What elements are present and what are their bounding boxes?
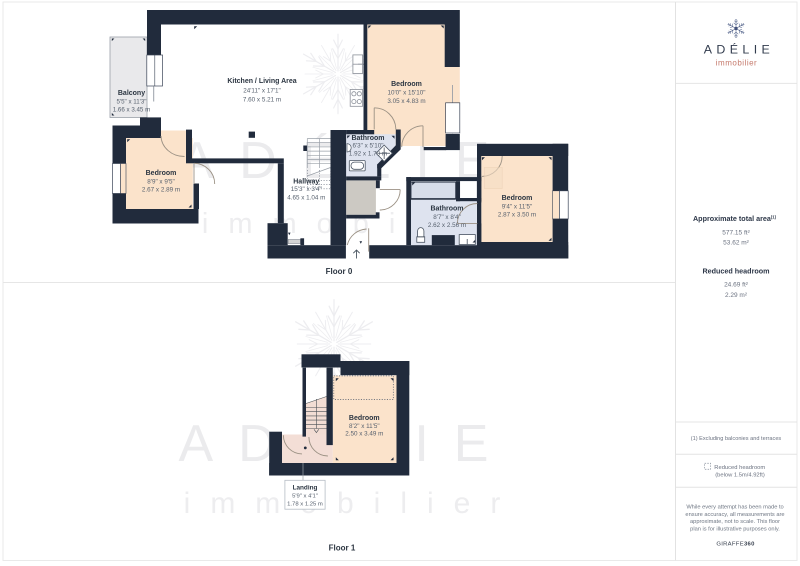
svg-text:Kitchen / Living Area: Kitchen / Living Area — [227, 78, 296, 85]
svg-text:While every attempt has been m: While every attempt has been made to — [686, 505, 783, 511]
svg-text:Bedroom: Bedroom — [146, 170, 177, 177]
svg-text:immobilier: immobilier — [716, 59, 757, 68]
svg-text:Landing: Landing — [293, 485, 318, 492]
svg-text:immobilier: immobilier — [184, 487, 521, 520]
svg-text:2.62 x 2.56 m: 2.62 x 2.56 m — [428, 222, 466, 229]
svg-text:24.69 ft²: 24.69 ft² — [724, 281, 749, 288]
svg-text:2.50 x 3.49 m: 2.50 x 3.49 m — [345, 431, 383, 438]
svg-text:Reduced headroom: Reduced headroom — [714, 465, 765, 471]
svg-text:2.29 m²: 2.29 m² — [725, 292, 748, 299]
svg-text:Bedroom: Bedroom — [502, 195, 533, 202]
svg-text:24'11" x 17'1": 24'11" x 17'1" — [243, 88, 281, 95]
svg-text:9'4" x 11'5": 9'4" x 11'5" — [502, 204, 533, 211]
svg-text:1.92 x 1.78 m: 1.92 x 1.78 m — [349, 151, 387, 158]
svg-text:6'3" x 5'10": 6'3" x 5'10" — [352, 143, 383, 150]
svg-text:ensure accuracy, all measureme: ensure accuracy, all measurements are — [685, 512, 784, 518]
svg-text:GIRAFFE360: GIRAFFE360 — [716, 541, 755, 547]
svg-text:8'9" x 9'5": 8'9" x 9'5" — [147, 179, 175, 186]
svg-text:Bedroom: Bedroom — [349, 415, 380, 422]
svg-text:53.62 m²: 53.62 m² — [723, 240, 749, 247]
svg-text:5'5" x 11'3": 5'5" x 11'3" — [116, 99, 146, 106]
svg-text:Reduced headroom: Reduced headroom — [702, 267, 769, 276]
svg-text:Bedroom: Bedroom — [391, 81, 422, 88]
svg-text:(below 1.5m/4.92ft): (below 1.5m/4.92ft) — [715, 472, 765, 478]
svg-text:Balcony: Balcony — [118, 90, 145, 97]
svg-text:10'0" x 15'10": 10'0" x 15'10" — [387, 90, 425, 97]
svg-text:7.60 x 5.21 m: 7.60 x 5.21 m — [243, 97, 281, 104]
svg-text:8'7" x 8'4": 8'7" x 8'4" — [433, 214, 461, 221]
svg-text:approximate, not to scale. Thi: approximate, not to scale. This floor — [690, 519, 780, 525]
svg-text:8'2" x 11'5": 8'2" x 11'5" — [349, 423, 380, 430]
svg-text:ADÉLIE: ADÉLIE — [704, 42, 774, 57]
svg-text:2.87 x 3.50 m: 2.87 x 3.50 m — [498, 212, 536, 219]
svg-text:Approximate total area(1): Approximate total area(1) — [693, 214, 777, 223]
svg-text:15'3" x 3'4": 15'3" x 3'4" — [291, 186, 322, 193]
svg-text:Bathroom: Bathroom — [430, 206, 463, 213]
svg-text:Hallway: Hallway — [293, 179, 319, 186]
svg-text:plan is for illustrative purpo: plan is for illustrative purposes only. — [690, 526, 780, 532]
svg-text:4.65 x 1.04 m: 4.65 x 1.04 m — [287, 195, 325, 202]
svg-text:Bathroom: Bathroom — [351, 135, 384, 142]
svg-text:5'9" x 4'1": 5'9" x 4'1" — [292, 494, 318, 500]
svg-text:2.67 x 2.89 m: 2.67 x 2.89 m — [142, 187, 180, 194]
svg-text:577.15 ft²: 577.15 ft² — [722, 230, 750, 237]
svg-text:3.05 x 4.83 m: 3.05 x 4.83 m — [387, 98, 425, 105]
svg-text:Floor 0: Floor 0 — [326, 267, 353, 276]
svg-text:1.66 x 3.45 m: 1.66 x 3.45 m — [113, 107, 151, 114]
svg-text:(1) Excluding balconies and te: (1) Excluding balconies and terraces — [691, 436, 782, 442]
svg-text:Floor 1: Floor 1 — [329, 544, 356, 553]
svg-text:1.78 x 1.25 m: 1.78 x 1.25 m — [287, 502, 323, 508]
